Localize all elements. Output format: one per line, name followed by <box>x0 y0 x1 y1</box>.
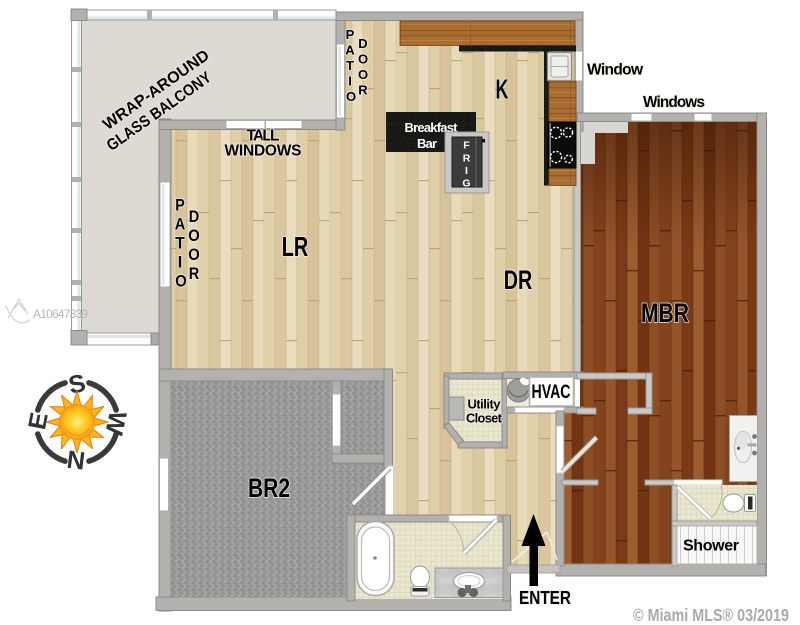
svg-text:HVAC: HVAC <box>532 382 571 403</box>
svg-text:O: O <box>358 52 368 67</box>
svg-text:T: T <box>175 234 185 253</box>
svg-text:I: I <box>348 74 352 89</box>
svg-text:Bar: Bar <box>417 136 437 151</box>
svg-text:MBR: MBR <box>641 298 689 328</box>
svg-text:LR: LR <box>282 231 309 262</box>
svg-text:ENTER: ENTER <box>519 587 571 608</box>
svg-text:A: A <box>345 43 355 58</box>
svg-text:R: R <box>358 83 368 98</box>
svg-text:G: G <box>462 178 470 190</box>
svg-text:D: D <box>358 36 367 51</box>
svg-text:O: O <box>346 89 356 104</box>
svg-text:WINDOWS: WINDOWS <box>225 143 302 160</box>
svg-text:A10647339: A10647339 <box>33 307 88 321</box>
svg-text:P: P <box>346 27 355 42</box>
svg-text:Utility: Utility <box>468 397 502 412</box>
svg-text:Window: Window <box>587 62 644 79</box>
svg-text:Windows: Windows <box>643 94 705 111</box>
svg-text:O: O <box>188 226 200 245</box>
svg-text:Shower: Shower <box>683 538 739 555</box>
svg-text:T: T <box>346 58 354 73</box>
svg-text:R: R <box>189 264 200 283</box>
svg-text:F: F <box>463 140 470 152</box>
svg-text:A: A <box>175 215 186 234</box>
svg-text:K: K <box>496 74 509 105</box>
svg-text:O: O <box>175 272 187 291</box>
svg-text:DR: DR <box>504 265 533 295</box>
svg-text:P: P <box>175 196 185 215</box>
svg-text:R: R <box>463 153 471 165</box>
svg-text:I: I <box>465 165 468 177</box>
svg-text:O: O <box>358 67 368 82</box>
svg-text:D: D <box>189 207 200 226</box>
svg-text:O: O <box>188 245 200 264</box>
svg-text:BR2: BR2 <box>248 473 290 503</box>
svg-text:I: I <box>178 253 183 272</box>
svg-text:Closet: Closet <box>466 411 503 426</box>
svg-text:© Miami MLS® 03/2019: © Miami MLS® 03/2019 <box>633 605 789 625</box>
